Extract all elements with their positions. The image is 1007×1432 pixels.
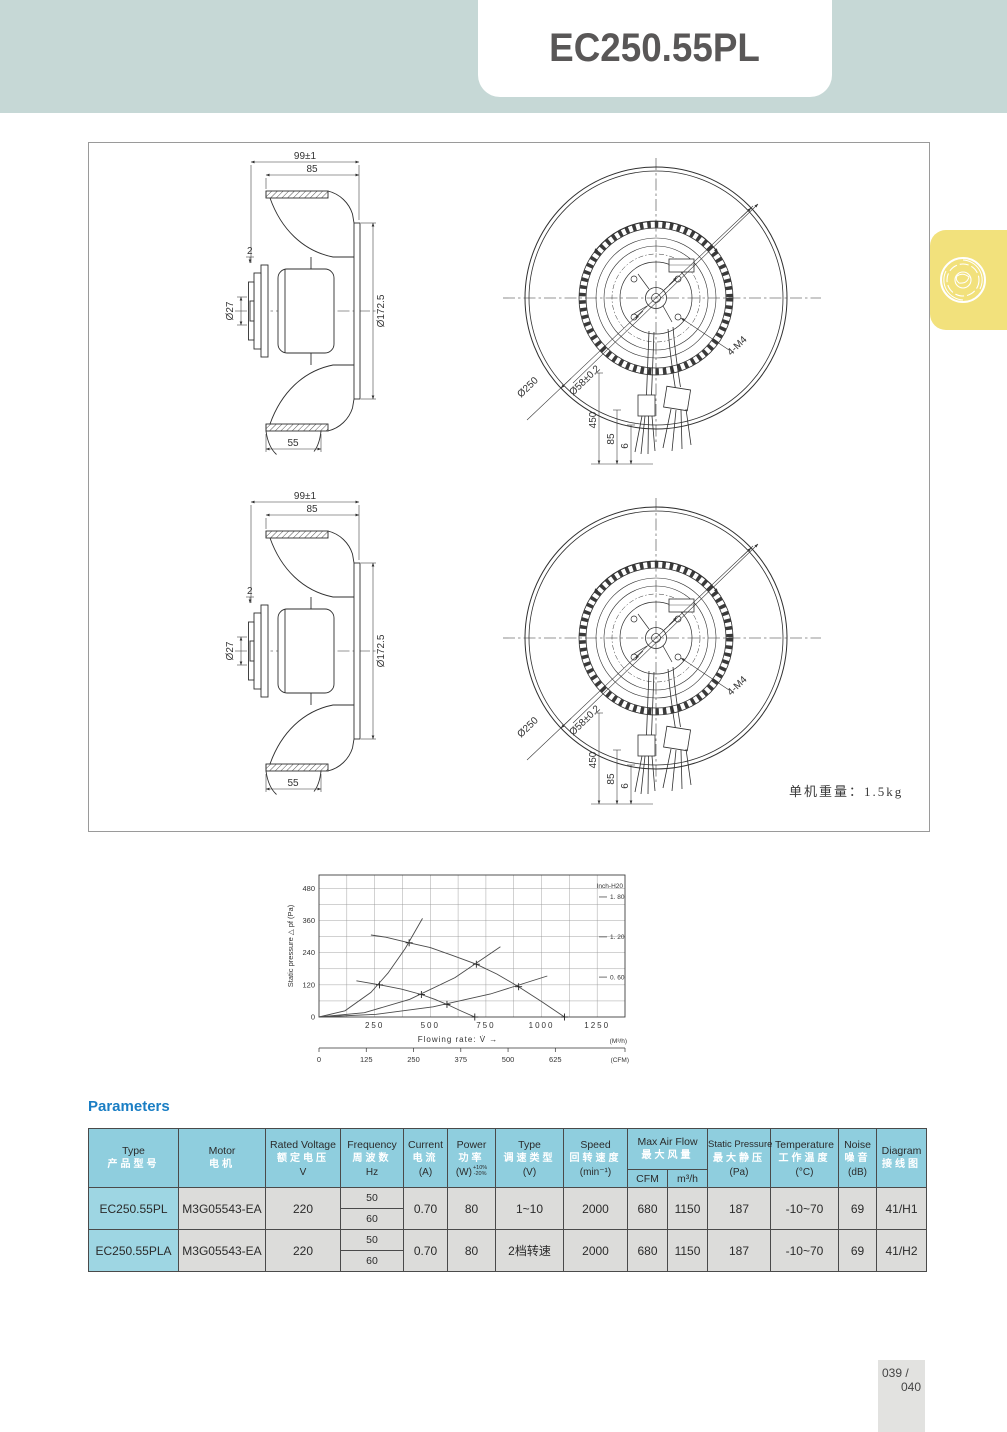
cell-motor: M3G05543-EA	[179, 1230, 266, 1272]
dim-plate-offset-label: 2	[247, 246, 253, 257]
hub-stack	[249, 265, 269, 357]
svg-text:125: 125	[360, 1055, 373, 1064]
chart-x-tick-labels: 25050075010001250	[365, 1021, 610, 1030]
cell-voltage: 220	[266, 1188, 341, 1230]
svg-text:250: 250	[407, 1055, 420, 1064]
dim-wire-length-label: 450	[588, 411, 599, 428]
cell-motor: M3G05543-EA	[179, 1188, 266, 1230]
col-header-max-air-flow: Max Air Flow 最大风量	[628, 1129, 708, 1170]
svg-text:625: 625	[549, 1055, 562, 1064]
dim-bolt-circle-label: Ø58±0.2	[567, 363, 603, 398]
svg-text:750: 750	[476, 1021, 495, 1030]
dim-mount-holes-label: 4-M4	[725, 674, 749, 698]
cell-temperature: -10~70	[771, 1230, 839, 1272]
fan-side-outline	[235, 191, 377, 455]
drawing-rows: 99±1 85 55 Ø172.5 Ø27 2	[89, 143, 929, 823]
dim-wire-a-label: 85	[606, 773, 617, 785]
fan-front-outline	[503, 158, 821, 454]
page-title: EC250.55PL	[550, 26, 761, 71]
chart-y-axis-title: Static pressure △ pf (Pa)	[286, 904, 295, 987]
page-number-line1: 039 /	[882, 1366, 921, 1380]
svg-text:1. 20: 1. 20	[610, 934, 625, 941]
svg-text:360: 360	[302, 916, 315, 925]
dim-outer-dia-label: Ø250	[515, 375, 541, 400]
dim-inlet-depth-label: 55	[287, 778, 299, 789]
svg-text:120: 120	[302, 980, 315, 989]
motor-body	[278, 269, 334, 353]
cell-control-type: 2档转速	[496, 1230, 564, 1272]
svg-text:240: 240	[302, 948, 315, 957]
cell-temperature: -10~70	[771, 1188, 839, 1230]
svg-text:250: 250	[365, 1021, 384, 1030]
dim-wire-a-label: 85	[606, 433, 617, 445]
brand-badge	[930, 230, 1007, 330]
col-header-diagram: Diagram 接线图	[877, 1129, 927, 1188]
svg-text:500: 500	[421, 1021, 440, 1030]
dim-wire-b-label: 6	[620, 443, 631, 449]
col-header-motor: Motor 电机	[179, 1129, 266, 1188]
cell-noise: 69	[839, 1188, 877, 1230]
table-row: EC250.55PLA M3G05543-EA 220 50 60 0.70 8…	[89, 1230, 927, 1272]
technical-drawing-frame: 99±1 85 55 Ø172.5 Ø27 2	[88, 142, 930, 832]
fan-side-view-drawing: 99±1 85 55 Ø172.5 Ø27 2	[221, 491, 391, 811]
dim-overall-width-label: 99±1	[294, 151, 317, 162]
col-subheader-m3h: m³/h	[668, 1170, 708, 1188]
datasheet-page: EC250.55PL	[0, 0, 1007, 1432]
dim-overall-width-label: 99±1	[294, 491, 317, 502]
dim-inlet-depth-label: 55	[287, 438, 299, 449]
chart-series-system-curve-2	[319, 947, 500, 1017]
header-band: EC250.55PL	[0, 0, 1007, 113]
lead-wires	[635, 327, 691, 454]
fan-front-view-drawing: Ø250 Ø58±0.2 4-M4 450 85 6	[491, 488, 931, 818]
col-header-noise: Noise 噪音 (dB)	[839, 1129, 877, 1188]
fan-front-outline	[503, 498, 821, 794]
chart-series-system-curve-1	[319, 918, 423, 1017]
brand-logo-icon	[930, 230, 1007, 330]
chart-right-axis: Inch-H201. 801. 200. 60	[597, 883, 625, 981]
cell-current: 0.70	[404, 1188, 448, 1230]
cell-speed: 2000	[564, 1188, 628, 1230]
dim-wire-length-label: 450	[588, 751, 599, 768]
dim-bolt-circle-label: Ø58±0.2	[567, 703, 603, 738]
dim-mount-dia-label: Ø172.5	[376, 294, 387, 327]
cell-pressure: 187	[708, 1230, 771, 1272]
page-number-line2: 040	[882, 1380, 921, 1394]
col-header-temperature: Temperature 工作温度 (°C)	[771, 1129, 839, 1188]
chart-series-system-curve-3	[319, 976, 547, 1017]
performance-chart-wrap: 012024036048025050075010001250Inch-H201.…	[283, 858, 648, 1083]
chart-x-axis-unit: (M³/h)	[610, 1038, 627, 1045]
fan-drawing-row: 99±1 85 55 Ø172.5 Ø27 2	[89, 143, 929, 483]
dim-plate-offset-label: 2	[247, 586, 253, 597]
col-header-frequency: Frequency 周波数 Hz	[341, 1129, 404, 1188]
svg-text:Inch-H20: Inch-H20	[597, 883, 624, 890]
chart-x-axis-title: Flowing rate: V̇ →	[418, 1035, 499, 1044]
dim-mount-holes-label: 4-M4	[725, 334, 749, 358]
cell-pressure: 187	[708, 1188, 771, 1230]
svg-text:(CFM): (CFM)	[611, 1057, 629, 1064]
col-header-speed: Speed 回转速度 (min⁻¹)	[564, 1129, 628, 1188]
svg-text:1250: 1250	[584, 1021, 610, 1030]
dim-wire-b-label: 6	[620, 783, 631, 789]
cell-m3h: 1150	[668, 1188, 708, 1230]
col-header-current: Current 电流 (A)	[404, 1129, 448, 1188]
cell-cfm: 680	[628, 1188, 668, 1230]
cell-power: 80	[448, 1188, 496, 1230]
cell-frequency: 50 60	[341, 1230, 404, 1272]
chart-series-fan-curve-high-speed	[371, 935, 565, 1017]
svg-text:0. 60: 0. 60	[610, 974, 625, 981]
lead-wires	[635, 667, 691, 794]
front-view-dimensions: Ø250 Ø58±0.2 4-M4 450 85 6	[515, 544, 758, 804]
chart-series-fan-curve-low-speed	[356, 981, 474, 1017]
table-row: EC250.55PL M3G05543-EA 220 50 60 0.70 80…	[89, 1188, 927, 1230]
cell-noise: 69	[839, 1230, 877, 1272]
fan-drawing-row: 99±1 85 55 Ø172.5 Ø27 2	[89, 483, 929, 823]
cell-type: EC250.55PL	[89, 1188, 179, 1230]
performance-chart: 012024036048025050075010001250Inch-H201.…	[283, 858, 648, 1083]
chart-plot-border	[319, 875, 625, 1017]
svg-text:480: 480	[302, 884, 315, 893]
svg-text:1000: 1000	[529, 1021, 555, 1030]
svg-text:375: 375	[455, 1055, 468, 1064]
cell-current: 0.70	[404, 1230, 448, 1272]
page-number-box: 039 / 040	[878, 1360, 925, 1432]
cell-power: 80	[448, 1230, 496, 1272]
col-header-type: Type 产品型号	[89, 1129, 179, 1188]
fan-front-view-drawing: Ø250 Ø58±0.2 4-M4 450 85 6	[491, 148, 931, 478]
cell-diagram: 41/H1	[877, 1188, 927, 1230]
cell-m3h: 1150	[668, 1230, 708, 1272]
dim-body-width-label: 85	[306, 504, 318, 515]
cell-control-type: 1~10	[496, 1188, 564, 1230]
parameters-table: Type 产品型号 Motor 电机 Rated Voltage 额定电压 V …	[88, 1128, 927, 1272]
dim-body-width-label: 85	[306, 164, 318, 175]
front-view-dimensions: Ø250 Ø58±0.2 4-M4 450 85 6	[515, 204, 758, 464]
parameters-heading: Parameters	[88, 1098, 170, 1115]
chart-y-tick-labels: 0120240360480	[302, 884, 315, 1022]
hub-stack	[249, 605, 269, 697]
cell-voltage: 220	[266, 1230, 341, 1272]
dim-shaft-dia-label: Ø27	[225, 301, 236, 320]
motor-body	[278, 609, 334, 693]
svg-text:0: 0	[317, 1055, 321, 1064]
cell-speed: 2000	[564, 1230, 628, 1272]
cell-type: EC250.55PLA	[89, 1230, 179, 1272]
svg-text:1. 80: 1. 80	[610, 894, 625, 901]
dim-outer-dia-label: Ø250	[515, 715, 541, 740]
col-header-power: Power 功率 (W)+10%-20%	[448, 1129, 496, 1188]
cell-diagram: 41/H2	[877, 1230, 927, 1272]
unit-weight-note: 单机重量：1.5kg	[789, 781, 903, 800]
col-header-static-pressure: Static Pressure 最大静压 (Pa)	[708, 1129, 771, 1188]
chart-grid	[319, 875, 625, 1017]
cell-frequency: 50 60	[341, 1188, 404, 1230]
dim-shaft-dia-label: Ø27	[225, 641, 236, 660]
fan-side-outline	[235, 531, 377, 795]
svg-text:0: 0	[311, 1013, 315, 1022]
col-header-control-type: Type 调速类型 (V)	[496, 1129, 564, 1188]
svg-text:500: 500	[502, 1055, 515, 1064]
chart-markers-fan-curve-high-speed	[406, 939, 568, 1020]
chart-cfm-axis: 0125250375500625(CFM)	[317, 1048, 629, 1064]
cell-cfm: 680	[628, 1230, 668, 1272]
dim-mount-dia-label: Ø172.5	[376, 634, 387, 667]
col-header-voltage: Rated Voltage 额定电压 V	[266, 1129, 341, 1188]
title-box: EC250.55PL	[478, 0, 832, 97]
col-subheader-cfm: CFM	[628, 1170, 668, 1188]
fan-side-view-drawing: 99±1 85 55 Ø172.5 Ø27 2	[221, 151, 391, 471]
